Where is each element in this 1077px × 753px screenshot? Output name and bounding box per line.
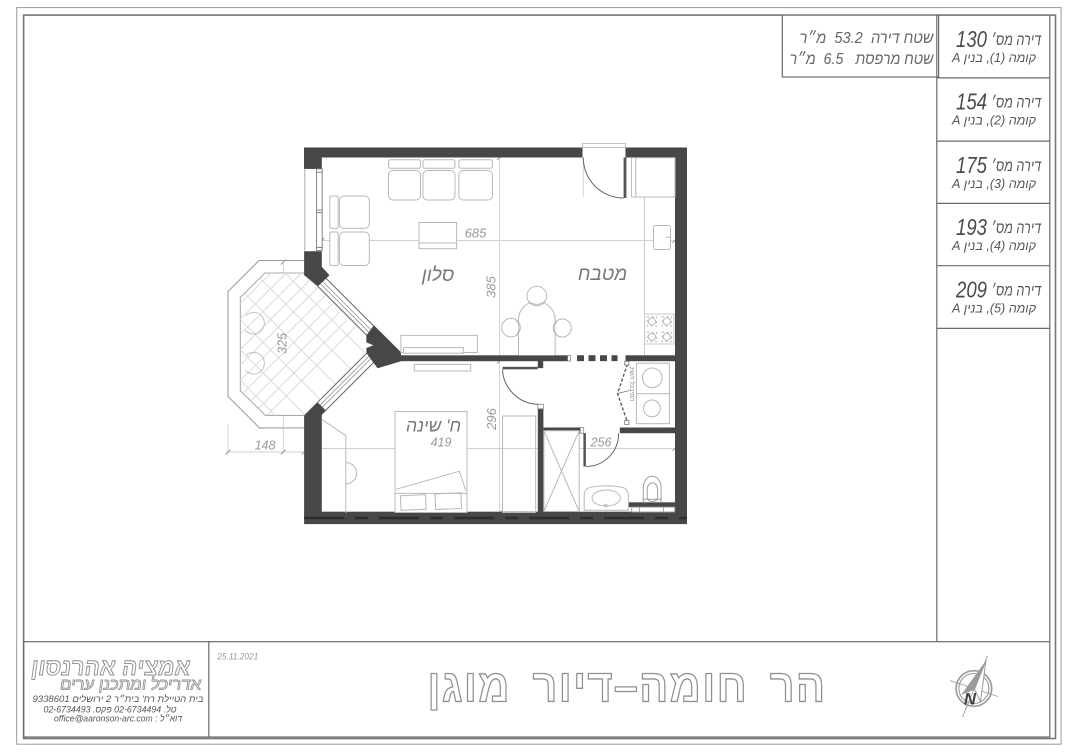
svg-text:קומה (5), בנין A: קומה (5), בנין A — [951, 301, 1037, 315]
svg-text:קומה (4), בנין A: קומה (4), בנין A — [951, 239, 1037, 253]
svg-text:130: 130 — [956, 26, 987, 52]
svg-text:דירה מס׳: דירה מס׳ — [991, 95, 1042, 112]
svg-text:קומה (1), בנין A: קומה (1), בנין A — [951, 51, 1037, 65]
svg-text:קומה (2), בנין A: קומה (2), בנין A — [951, 114, 1037, 128]
svg-text:אדריכל ומתכנן ערים: אדריכל ומתכנן ערים — [59, 676, 203, 694]
svg-text:25.11.2021: 25.11.2021 — [216, 652, 258, 662]
svg-text:419: 419 — [431, 436, 452, 450]
svg-text:דוא״ל : office@aaronson-arc.c: דוא״ל : office@aaronson-arc.com — [54, 712, 183, 723]
svg-text:209: 209 — [955, 276, 987, 302]
svg-text:דירה מס׳: דירה מס׳ — [991, 158, 1042, 175]
svg-text:685: 685 — [465, 226, 487, 241]
svg-text:385: 385 — [484, 275, 499, 297]
svg-text:154: 154 — [956, 89, 987, 115]
svg-text:175: 175 — [956, 152, 987, 178]
svg-text:נישה לכביסה: נישה לכביסה — [628, 366, 636, 402]
svg-text:הר חומה–דיור מוגן: הר חומה–דיור מוגן — [428, 660, 827, 712]
svg-text:מטבח: מטבח — [578, 264, 627, 285]
svg-text:דירה מס׳: דירה מס׳ — [991, 220, 1042, 237]
svg-text:N: N — [964, 691, 977, 709]
svg-text:דירה מס׳: דירה מס׳ — [991, 282, 1042, 299]
svg-text:קומה (3), בנין A: קומה (3), בנין A — [951, 177, 1037, 191]
svg-text:296: 296 — [484, 407, 499, 430]
svg-text:193: 193 — [956, 214, 987, 240]
svg-text:בית הטיילת רח' בית״ר 2 ירושל: בית הטיילת רח' בית״ר 2 ירושלים 9338601 — [33, 693, 204, 704]
svg-text:148: 148 — [255, 439, 276, 453]
svg-text:325: 325 — [276, 333, 290, 354]
svg-text:סלון: סלון — [421, 265, 454, 286]
svg-text:דירה מס׳: דירה מס׳ — [991, 32, 1042, 49]
svg-text:שטח דירה 53.2 מ״ר: שטח דירה 53.2 מ״ר — [800, 30, 935, 47]
svg-text:ח' שינה: ח' שינה — [406, 416, 461, 436]
svg-text:שטח מרפסת 6.5 מ״ר: שטח מרפסת 6.5 מ״ר — [790, 51, 935, 68]
svg-text:256: 256 — [590, 436, 612, 450]
